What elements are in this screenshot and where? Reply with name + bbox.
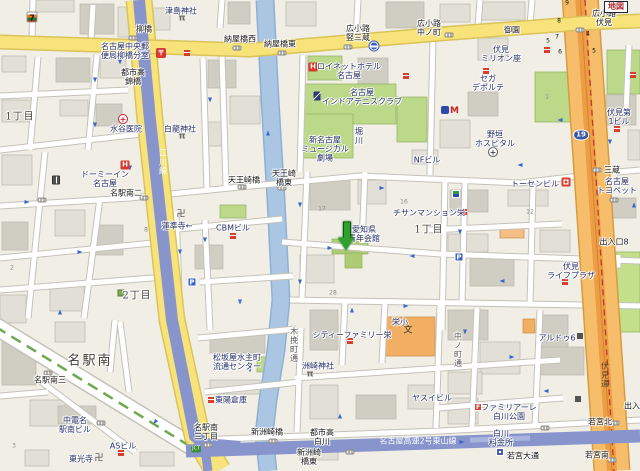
map-label: 出入口8 [599, 238, 628, 247]
signal-icon [541, 426, 550, 431]
hospital-icon: + [488, 147, 498, 157]
map-label: 中ノ町通 [454, 332, 463, 368]
map-label: 中電名駅南ビル [59, 416, 91, 434]
oneway-arrow-icon [558, 118, 563, 122]
hospital-icon: + [118, 114, 128, 124]
toll-gate-icon [496, 448, 504, 456]
map-label: 名駅南三丁目 [194, 423, 218, 441]
map-label: ASビル [110, 442, 137, 451]
map-label: 1丁目 [5, 113, 34, 122]
map-label: 若宮北 [588, 418, 612, 427]
poi-dot-icon [230, 233, 236, 239]
signal-icon [346, 450, 355, 455]
signal-icon [593, 168, 602, 173]
map-label: トーセンビル [511, 180, 559, 189]
map-label: 天王崎橋 [228, 176, 260, 185]
map-label: 1 [545, 93, 549, 102]
map-label: 4 [586, 30, 590, 39]
oneway-arrow-icon [178, 250, 182, 255]
map-label: 津島神社 [165, 7, 197, 16]
map-label: ロイネットホテル名古屋 [317, 62, 381, 80]
oneway-arrow-icon [410, 254, 415, 258]
map-label: 名駅南二 [110, 189, 142, 198]
signal-icon [269, 439, 278, 444]
oneway-arrow-icon [608, 140, 612, 145]
map-label: 新洲崎橋 [251, 428, 283, 437]
signal-icon [97, 421, 106, 426]
signal-icon [38, 198, 47, 203]
marker-head [338, 238, 354, 251]
oneway-arrow-icon [544, 389, 549, 393]
oneway-arrow-icon [298, 280, 302, 285]
map-label: 伏見ミリオン座 [481, 45, 521, 63]
map-label: 東光寺 [69, 455, 93, 464]
map-label: 松坂屋水主町流通センター [213, 353, 261, 371]
poi-dot-icon [630, 72, 636, 78]
hotel-icon: H [121, 161, 130, 170]
convenience-store-icon [452, 190, 460, 198]
map-label: ドーミーイン名古屋 [81, 170, 129, 188]
map-label: 新洲崎橋東 [297, 448, 321, 466]
map-label: 白川料金所 [489, 429, 513, 447]
map-label: 伏見第1ビル [607, 108, 631, 126]
oneway-arrow-icon [380, 186, 385, 190]
map-label: 納屋橋東 [264, 40, 296, 49]
signal-icon [576, 28, 585, 33]
map-label: 柳橋 [136, 25, 152, 34]
oneway-arrow-icon [338, 414, 342, 419]
map-label: 御園 [504, 26, 520, 35]
tennis-icon [314, 92, 321, 101]
map-label: 5 [592, 47, 596, 56]
map-label: ファミリアーレ白川公園 [481, 403, 537, 421]
oneway-arrow-icon [463, 330, 467, 335]
map-label: 名駅南三 [34, 376, 66, 385]
map-label: ヤスイビル [412, 394, 452, 403]
map-label: 水谷医院 [110, 125, 142, 134]
company-logo-icon [575, 396, 581, 402]
oneway-arrow-icon [458, 230, 462, 235]
map-label: 三蔵 [604, 166, 620, 175]
oneway-arrow-icon [328, 246, 333, 250]
map-label: 文 [403, 327, 412, 336]
parking-icon: P [455, 253, 464, 262]
signal-icon [344, 45, 353, 50]
map-label: 3 [12, 442, 16, 451]
map-label: 6 [558, 48, 562, 57]
map-label: 堀川 [355, 127, 364, 145]
map-label: 28 [329, 289, 337, 298]
fire-station-icon [562, 178, 571, 187]
post-office-icon [184, 50, 190, 56]
map-label: 9 [565, 0, 569, 8]
map-label: CBMビル [216, 224, 250, 233]
signal-icon [204, 443, 213, 448]
map-label: 名駅南 [67, 357, 112, 366]
map-label: 東陽倉庫 [215, 396, 247, 405]
poi-dot-icon [544, 47, 550, 53]
map-label: 2丁目 [122, 292, 151, 301]
map-label: 5 [546, 37, 550, 46]
map-canvas[interactable]: 1丁目2丁目名駅南1丁目柳橋納屋橋西納屋橋東広小路竪三蔵広小路中ノ町広小路伏見御… [0, 0, 640, 471]
map-label: 名古屋インドアテニスクラブ [322, 88, 402, 106]
poi-dot-icon [208, 397, 214, 403]
subway-logo-icon: M [441, 106, 459, 116]
map-label: 出入口 [624, 402, 640, 411]
map-label: 若宮大通 [507, 452, 539, 461]
map-label: 広小路竪三蔵 [346, 24, 370, 42]
parking-icon: P [188, 278, 197, 287]
map-label: 洲崎神社 [302, 362, 334, 371]
map-label: JCT [191, 446, 201, 453]
map-label: 木挽町通 [290, 327, 299, 363]
map-label: 19 [573, 130, 589, 141]
oneway-arrow-icon [350, 308, 354, 313]
signal-icon [238, 185, 247, 190]
bus-stop-icon [370, 42, 379, 51]
oneway-arrow-icon [298, 203, 302, 208]
poi-dot-icon [118, 450, 124, 456]
signal-icon [129, 36, 138, 41]
oneway-arrow-icon [510, 355, 515, 359]
map-label: 都市高錦橋 [121, 68, 145, 86]
map-label: 伏見ライフプラザ [547, 262, 595, 280]
oneway-arrow-icon [632, 203, 636, 208]
torii-icon: π [306, 371, 313, 380]
map-label: 名古屋高速2号東山線 [379, 437, 456, 446]
map-label: 野垣ホスピタル [475, 130, 515, 148]
selected-location-marker[interactable] [339, 222, 355, 253]
oneway-arrow-icon [208, 98, 212, 103]
oneway-arrow-icon [93, 78, 97, 83]
oneway-arrow-icon [93, 123, 97, 128]
map-label: アルドゥ6 [538, 334, 575, 343]
map-label: NFビル [414, 156, 441, 165]
oneway-arrow-icon [118, 60, 122, 65]
torii-icon: π [178, 133, 185, 142]
signal-icon [278, 51, 287, 56]
map-label: 16 [400, 198, 408, 207]
map-label: 伏見通 [601, 362, 610, 389]
oneway-arrow-icon [518, 163, 523, 167]
map-label: シティーファミリー栄 [312, 331, 391, 340]
map-label: 12 [526, 208, 534, 217]
seven-eleven-icon: 7 [27, 12, 38, 23]
oneway-arrow-icon [238, 300, 242, 305]
temple-manji-icon: 卍 [176, 211, 185, 220]
oneway-arrow-icon [500, 279, 505, 283]
map-label: 白龍神社 [164, 125, 196, 134]
map-label: 名古屋トヨペット [597, 177, 637, 195]
map-label: 地図 [604, 1, 628, 13]
map-label: 名古屋中央郵便局柳橋分室 [101, 42, 149, 60]
map-label: 江川線 [159, 149, 168, 176]
oneway-arrow-icon [404, 304, 409, 308]
map-label: 新名古屋ミュージカル劇場 [301, 136, 349, 163]
signal-icon [233, 46, 242, 51]
map-label: 1丁目 [414, 226, 443, 235]
torii-icon: π [178, 15, 185, 24]
map-label: チサンマンション栄 [393, 209, 465, 218]
map-label: 8 [557, 17, 561, 26]
oneway-arrow-icon [203, 238, 207, 243]
company-logo-icon [577, 333, 583, 339]
post-office-icon: 〒 [156, 48, 166, 58]
oneway-arrow-icon [58, 310, 62, 315]
map-label: 広小路中ノ町 [417, 19, 441, 37]
signal-icon [445, 33, 454, 38]
gas-station-icon [52, 176, 60, 185]
temple-manji-icon: 卍 [94, 455, 103, 464]
map-label: 7 [555, 33, 559, 42]
oneway-arrow-icon [78, 250, 83, 254]
poi-dot-icon [614, 126, 620, 132]
oneway-arrow-icon [460, 440, 465, 444]
map-label: 都市高白川 [310, 428, 334, 446]
signal-icon [610, 198, 619, 203]
map-label: 若宮南 [585, 451, 609, 460]
map-label: 納屋橋西 [224, 35, 256, 44]
oneway-arrow-icon [266, 131, 270, 136]
map-label: 17 [318, 205, 326, 214]
map-label: 天王崎橋東 [272, 169, 296, 187]
oneway-arrow-icon [25, 200, 30, 204]
map-label: 2 [10, 264, 14, 273]
map-label: 蓮準寺← [162, 222, 193, 231]
map-label: セガデポルテ [472, 74, 504, 92]
map-label: 8 [144, 226, 148, 235]
poi-dot-icon [403, 73, 409, 79]
